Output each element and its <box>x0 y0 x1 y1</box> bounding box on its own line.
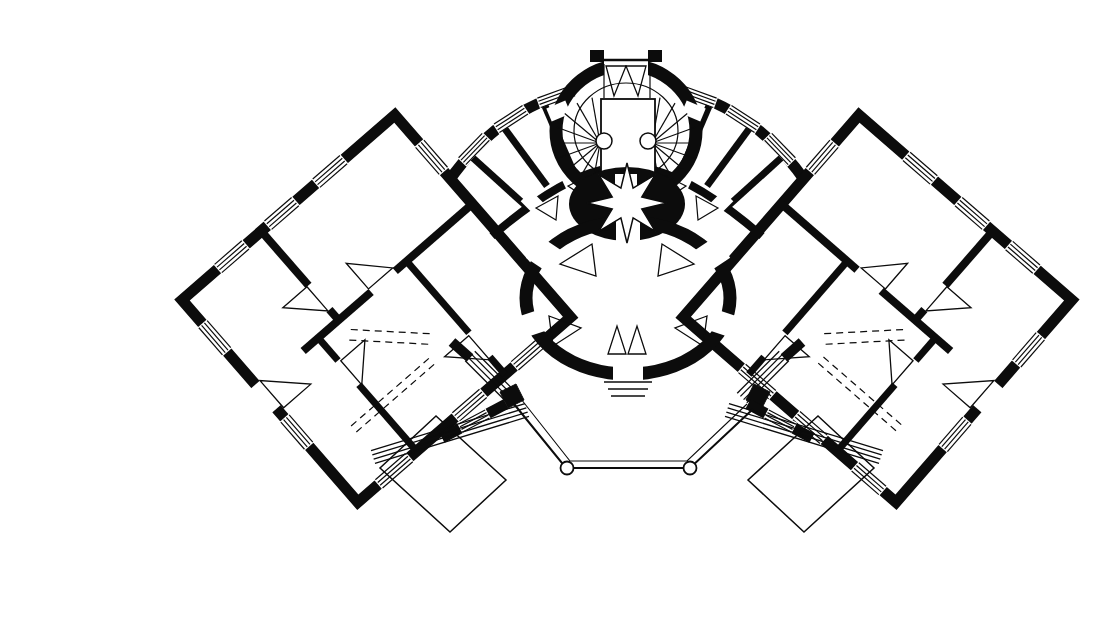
left-wing <box>171 104 581 512</box>
right-wing-window-se-2 <box>937 415 973 454</box>
right-wing-window-ne-1 <box>901 150 940 186</box>
rotunda-south-door-leaf-right <box>628 326 646 354</box>
right-connector-partition-1 <box>728 158 781 206</box>
terrace-railing-inner <box>521 399 747 461</box>
left-wing-partition-3a <box>407 261 469 333</box>
left-wing-door-swing-1 <box>346 242 392 289</box>
scanned-floor-plan-page <box>0 0 1110 635</box>
right-wing-spine-wall-a <box>782 204 857 270</box>
stair-newel-right <box>640 133 656 149</box>
rotunda-ne-door-gap <box>702 247 723 261</box>
terrace-column-right <box>684 462 697 475</box>
left-wing-partition-1b <box>329 310 338 321</box>
right-wing-window-se-1 <box>1010 331 1046 370</box>
terrace-column-left <box>561 462 574 475</box>
floor-plan <box>0 0 1110 635</box>
left-wing-door-swing-2 <box>283 287 328 332</box>
right-wing-door-swing-3 <box>868 340 913 385</box>
left-wing-outer-wall <box>182 115 571 502</box>
right-wing-partition-1a <box>945 231 992 285</box>
right-wing-partition-3a <box>785 261 847 333</box>
right-wing-partition-2a <box>916 338 936 361</box>
left-wing-window-ne <box>413 138 449 177</box>
left-wing-window-nw-2 <box>262 195 301 231</box>
left-wing-window-nw-1 <box>213 239 252 275</box>
left-connector-window-2 <box>492 103 530 134</box>
left-connector-partition-2 <box>505 129 547 186</box>
left-wing-door-swing-3 <box>341 340 386 385</box>
right-wing-door-swing-1 <box>861 242 907 289</box>
right-connector-window-2 <box>724 103 762 134</box>
left-wing-window-nw-3 <box>311 153 350 189</box>
right-wing-window-ne-3 <box>1004 239 1043 275</box>
rotunda-west-door-gap <box>519 320 543 328</box>
right-wing-partition-1b <box>915 310 924 321</box>
right-wing-outer-wall <box>683 115 1072 502</box>
left-wing-partition-3b <box>490 357 505 374</box>
right-wing-door-swing-2 <box>926 287 971 332</box>
right-connector-partition-2 <box>707 129 749 186</box>
rotunda-nw-door-swing <box>560 244 596 276</box>
right-gallery-upper-wall <box>784 342 802 358</box>
left-connector-partition-1 <box>473 158 526 206</box>
left-gallery-upper-wall <box>452 342 470 358</box>
right-wing-window-ne-2 <box>953 195 992 231</box>
left-wing-partition-2a <box>318 338 338 361</box>
right-wing-window-nw <box>804 138 840 177</box>
left-wing-window-sw-2 <box>279 413 315 452</box>
rotunda-nw-door-gap <box>533 247 554 261</box>
stair-newel-left <box>596 133 612 149</box>
rotunda-east-door-gap <box>713 320 737 328</box>
rotunda-ne-door-swing <box>658 244 694 276</box>
vestibule-star <box>587 163 667 243</box>
right-wing-window-sw-3 <box>850 461 889 497</box>
rotunda-south-door-leaf-left <box>608 326 626 354</box>
stair-tower-chimney-stub-left <box>590 50 604 62</box>
left-wing-window-sw-1 <box>197 318 233 357</box>
stair-tower-chimney-stub-right <box>648 50 662 62</box>
left-wing-partition-1a <box>261 231 308 285</box>
